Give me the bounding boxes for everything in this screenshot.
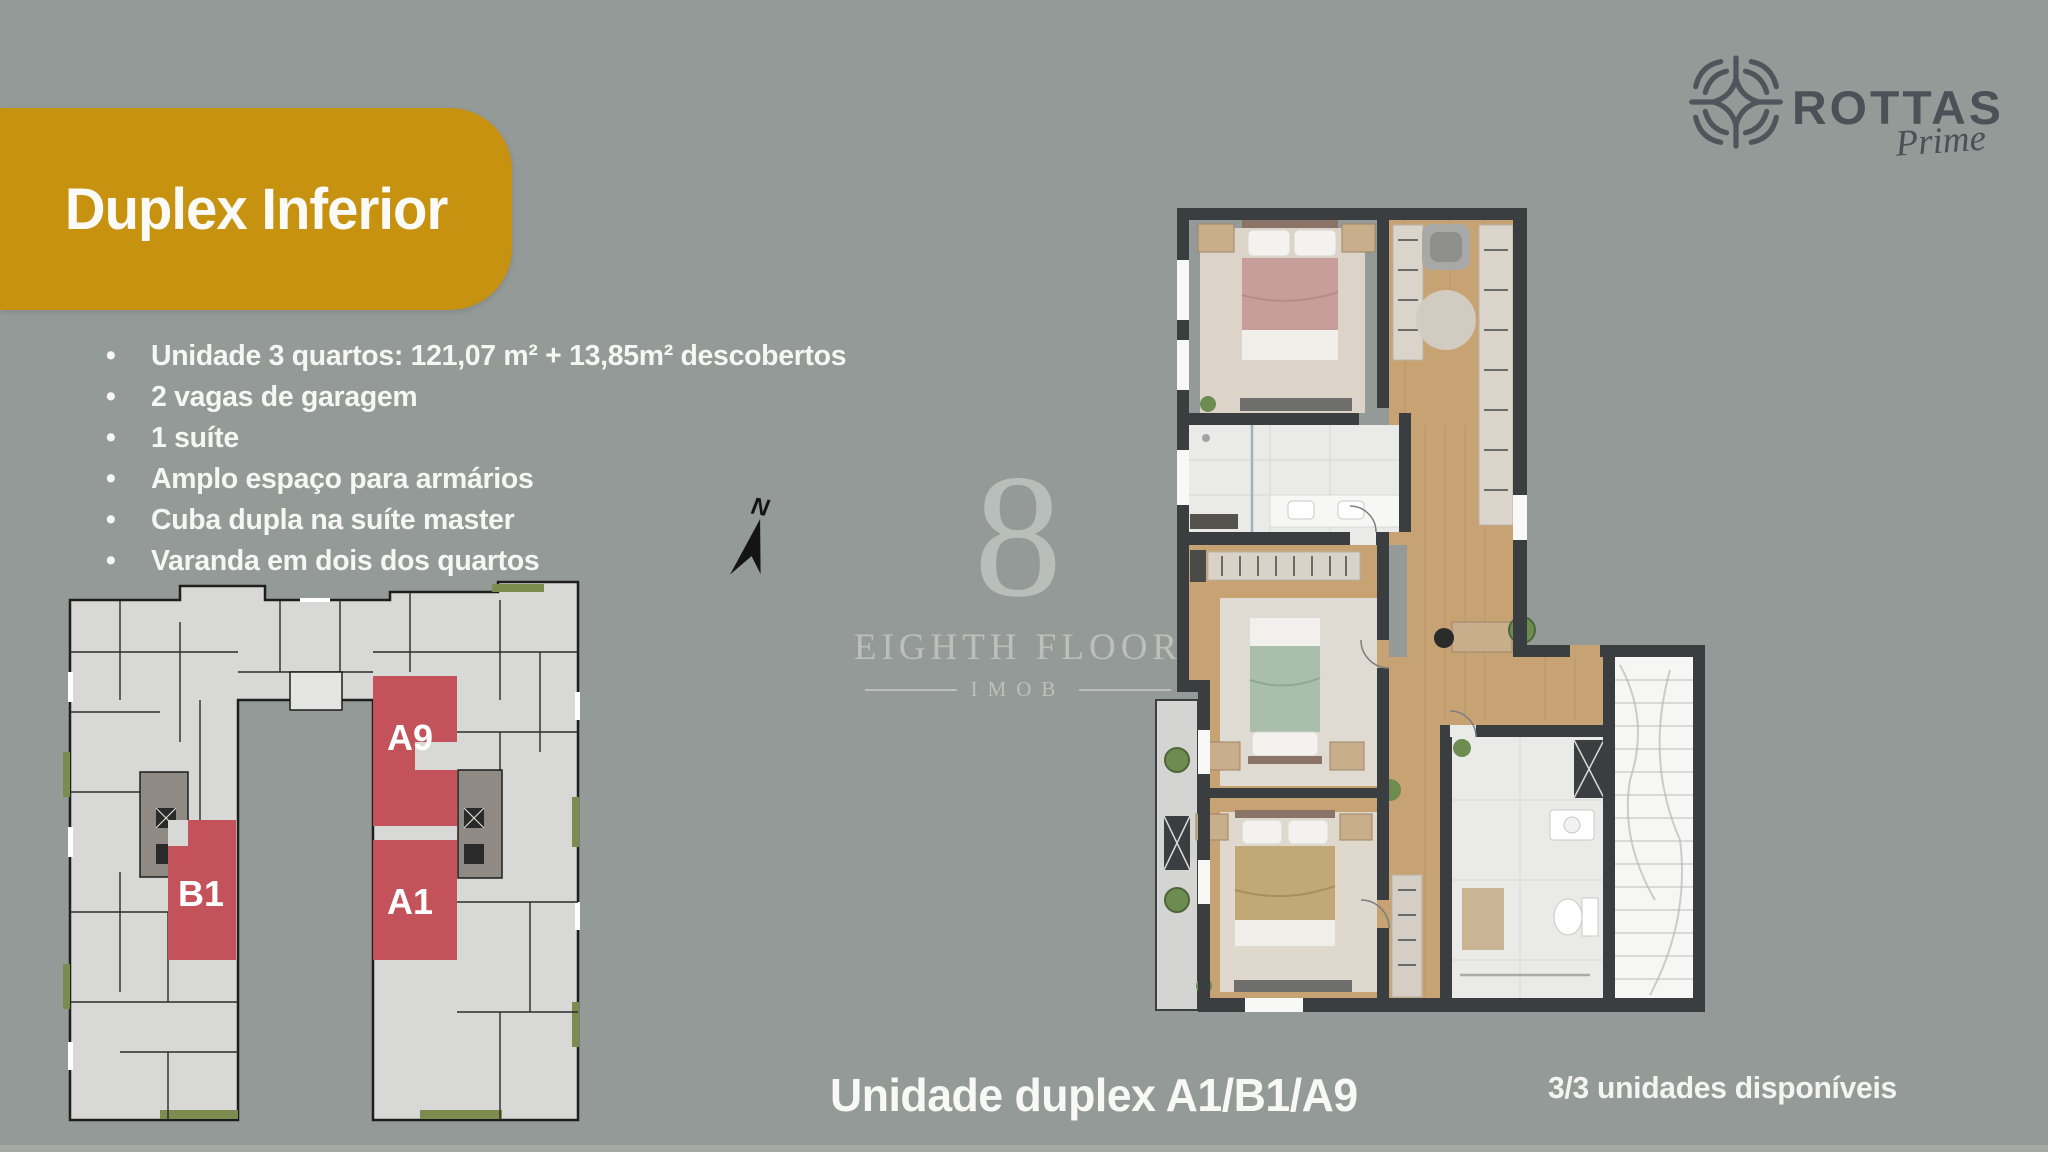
rottas-emblem-icon [1688, 54, 1784, 150]
feature-item: 2 vagas de garagem [100, 377, 846, 418]
unit-label-a1: A1 [387, 881, 433, 922]
compass-label: N [749, 493, 771, 523]
slide: Duplex Inferior Unidade 3 quartos: 121,0… [0, 0, 2048, 1152]
watermark-subtitle: IMOB [971, 677, 1066, 702]
page-title: Duplex Inferior [65, 176, 447, 243]
lobby [290, 672, 342, 710]
balcony [1156, 700, 1198, 1010]
unit-label-b1: B1 [178, 873, 224, 914]
watermark-eight-glyph: 8 [848, 462, 1188, 612]
stairs [1615, 657, 1693, 1003]
master-bedroom [1198, 220, 1375, 413]
bathroom2 [1452, 737, 1604, 1003]
unit-label-a9: A9 [387, 717, 433, 758]
master-bathroom [1189, 425, 1407, 532]
unit-caption: Unidade duplex A1/B1/A9 [830, 1068, 1358, 1122]
title-banner: Duplex Inferior [0, 108, 512, 310]
watermark: 8 EIGHTH FLOOR IMOB [848, 462, 1188, 702]
bedroom3 [1196, 810, 1378, 994]
bedroom2-wardrobe [1190, 550, 1360, 582]
floor-plan [1150, 200, 1710, 1015]
availability-status: 3/3 unidades disponíveis [1548, 1070, 1897, 1106]
feature-item: 1 suíte [100, 418, 846, 459]
watermark-rule-left [865, 689, 957, 691]
bottom-edge-strip [0, 1145, 2048, 1152]
brand-logo: ROTTAS Prime [1688, 52, 1988, 182]
feature-item: Unidade 3 quartos: 121,07 m² + 13,85m² d… [100, 336, 846, 377]
key-plan: A9 B1 A1 [60, 572, 590, 1147]
bedroom2 [1206, 598, 1378, 786]
watermark-subtitle-row: IMOB [848, 677, 1188, 702]
north-arrow-icon: N [716, 492, 788, 584]
